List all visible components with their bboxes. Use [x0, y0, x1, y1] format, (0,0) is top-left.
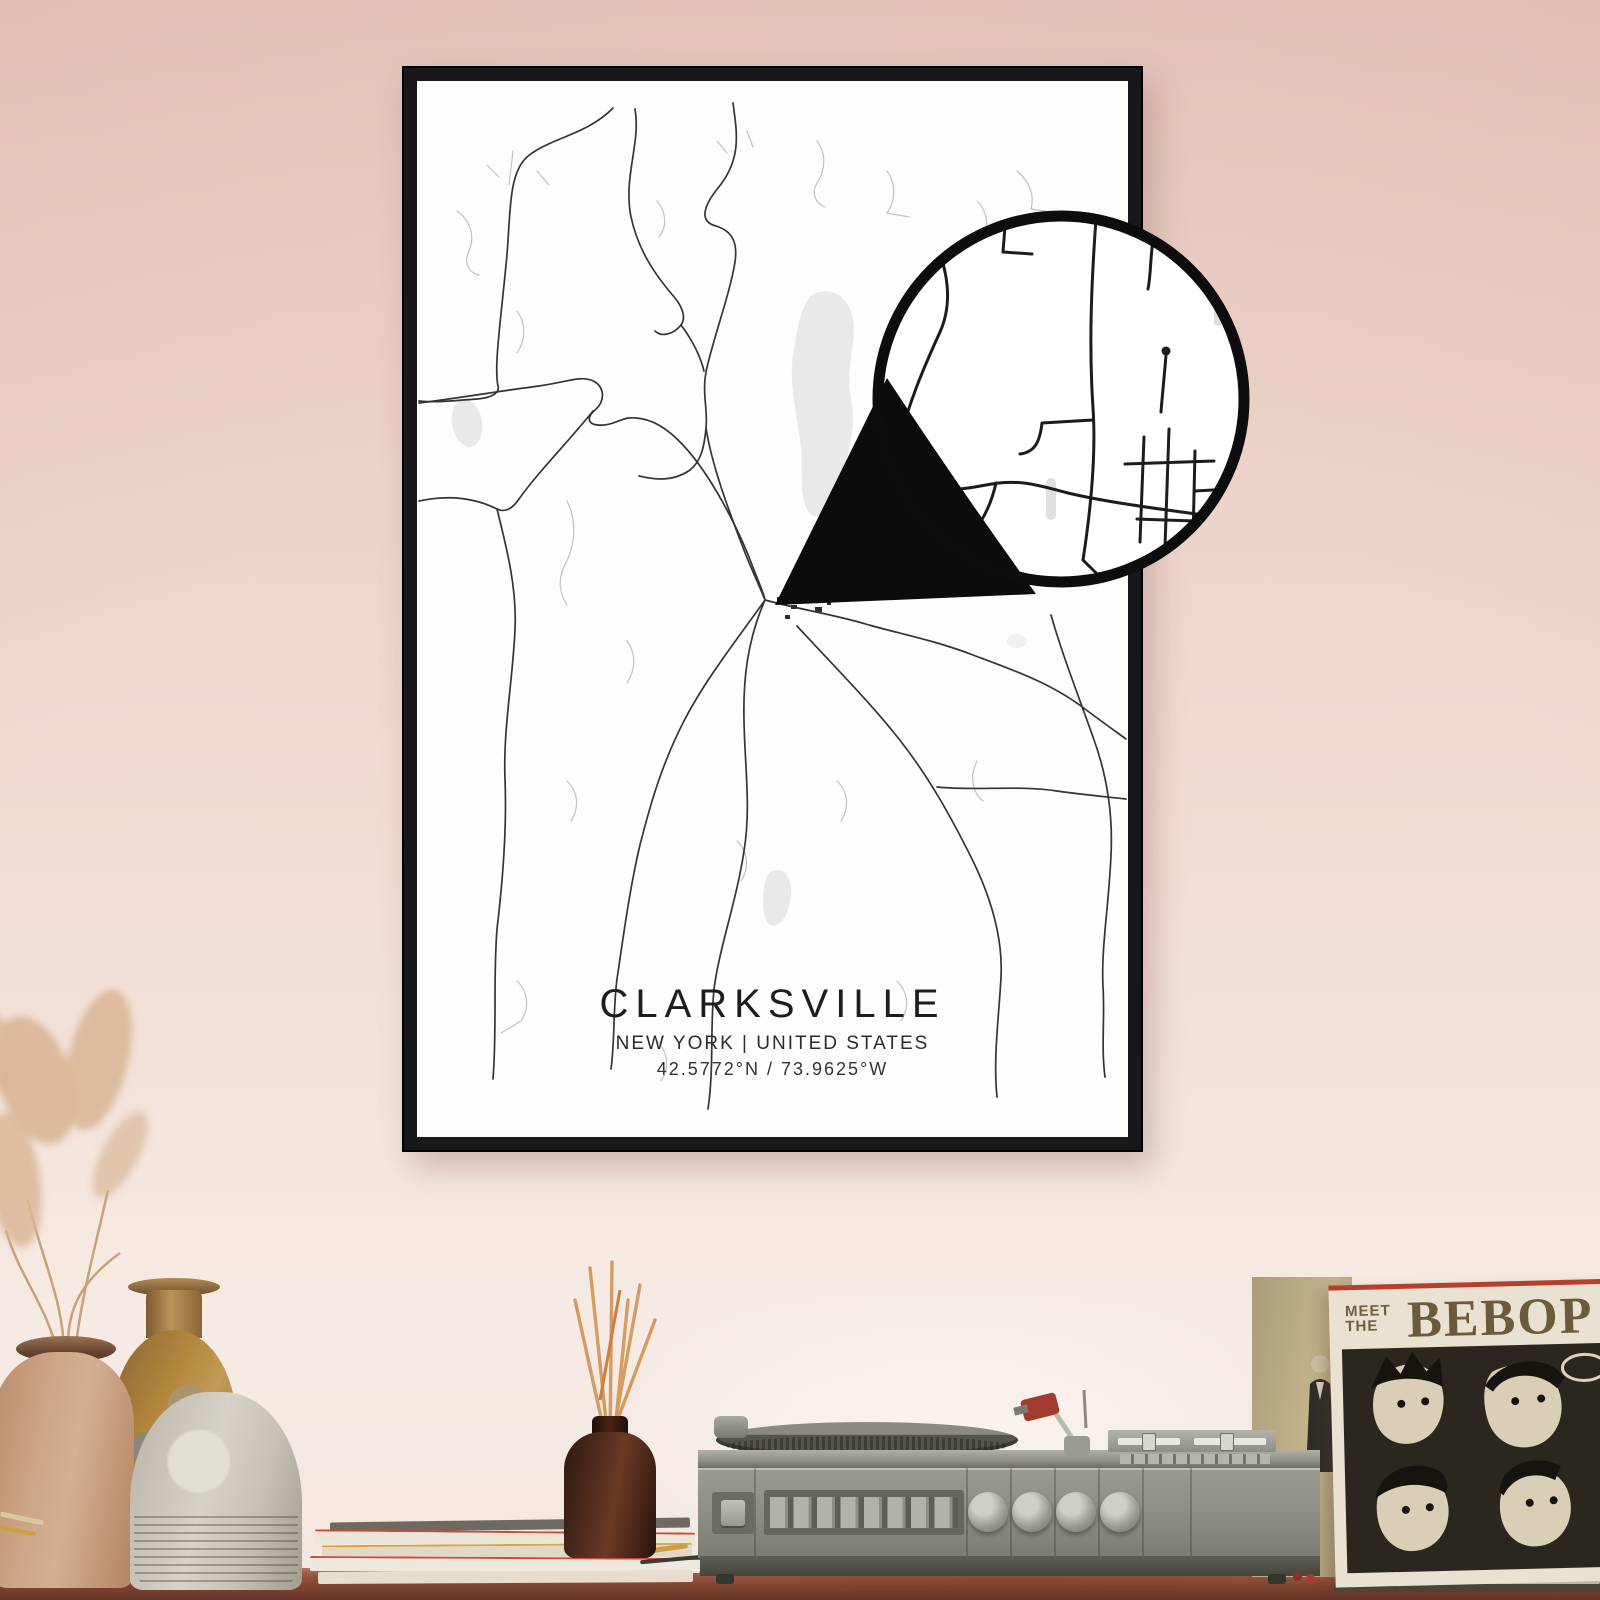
red-cable-plug	[1293, 1572, 1302, 1581]
album-header: MEET THE BEBOP	[1328, 1283, 1600, 1348]
pushbutton-row	[770, 1497, 958, 1528]
player-foot	[1268, 1574, 1286, 1584]
record-label-logo	[1562, 1354, 1600, 1381]
album-title-prefix: MEET THE	[1345, 1303, 1391, 1334]
album-photo-art	[1342, 1343, 1600, 1574]
poster-title: CLARKSVILLE	[417, 982, 1128, 1027]
album-title: BEBOP	[1407, 1286, 1595, 1350]
player-foot	[716, 1574, 734, 1584]
zoom-detail-circle-icon	[758, 188, 1272, 620]
slider-handle	[1220, 1433, 1234, 1451]
tuning-knob	[1100, 1492, 1140, 1532]
mockup-scene: CLARKSVILLE NEW YORK | UNITED STATES 42.…	[0, 0, 1600, 1600]
bass-knob	[1012, 1492, 1052, 1532]
slider-handle	[1142, 1433, 1156, 1451]
treble-knob	[1056, 1492, 1096, 1532]
ribbed-vase-ribs	[134, 1516, 298, 1586]
power-button	[721, 1500, 745, 1526]
poster-subtitle: NEW YORK | UNITED STATES	[417, 1033, 1128, 1055]
volume-knob	[968, 1492, 1008, 1532]
album-cover: MEET THE BEBOP	[1328, 1278, 1600, 1587]
record-player-base	[700, 1556, 1320, 1576]
preset-buttons	[1120, 1454, 1270, 1464]
tan-vase	[0, 1352, 134, 1588]
pampas-grass	[0, 985, 240, 1375]
poster-coordinates: 42.5772°N / 73.9625°W	[417, 1059, 1128, 1080]
red-cable-plug	[1306, 1574, 1315, 1583]
tonearm	[1000, 1388, 1110, 1458]
spindle-adapter	[714, 1416, 748, 1438]
magazine	[318, 1570, 693, 1584]
reed-diffuser-bottle	[564, 1432, 656, 1558]
control-slider-panel	[1108, 1430, 1276, 1452]
